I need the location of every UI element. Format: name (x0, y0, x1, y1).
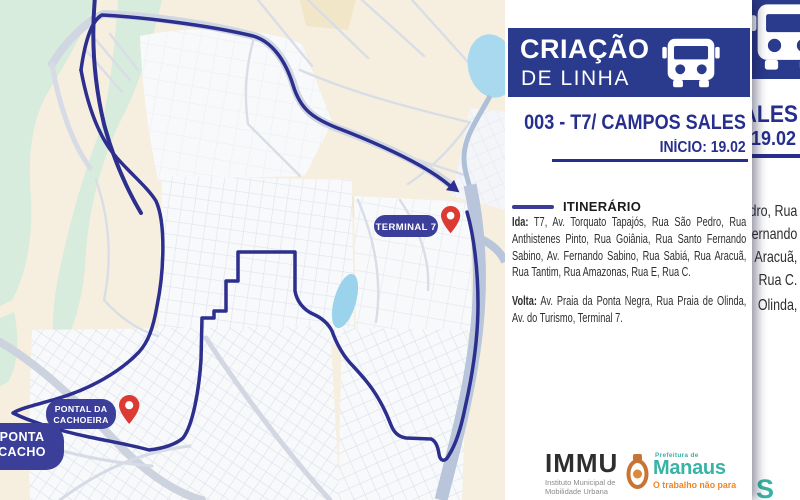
flyer-screenshot: ALES 19.02 dro, Rua ernando Aracuã, Rua … (0, 0, 800, 500)
ida-line: Rua Tantim, Rua Amazonas, Rua E, Rua C. (512, 264, 746, 281)
ida-text: T7, Av. Torquato Tapajós, Rua São Pedro,… (534, 214, 746, 229)
line-title: 003 - T7/ CAMPOS SALES (524, 111, 746, 135)
heading-label: ITINERÁRIO (563, 199, 641, 214)
route-map: TERMINAL 7 PONTAL DA CACHOEIRA (0, 0, 505, 500)
line-start-date: INÍCIO: 19.02 (660, 139, 746, 157)
volta-line: Volta: Av. Praia da Ponta Negra, Rua Pra… (512, 293, 746, 310)
heading-dash (512, 205, 554, 209)
fragment-line: Rua C. (749, 269, 797, 292)
title-underline (552, 159, 748, 162)
ida-line: Ida: T7, Av. Torquato Tapajós, Rua São P… (512, 214, 746, 231)
info-panel: CRIAÇÃO DE LINHA 003 - T7/ CAMPOS SALES … (505, 0, 752, 500)
immu-subtitle-line1: Instituto Municipal de (545, 478, 618, 487)
manaus-tagline: O trabalho não para (653, 480, 736, 490)
background-manaus-logo-fragment: S (756, 474, 774, 500)
bus-icon (750, 2, 800, 72)
manaus-name: Manaus (653, 459, 736, 478)
fragment-line: Olinda, (749, 294, 797, 317)
bus-icon (662, 37, 720, 89)
pontal-label-line1: PONTAL DA (55, 404, 108, 414)
background-duplicate-panel: ALES 19.02 dro, Rua ernando Aracuã, Rua … (750, 0, 800, 500)
background-banner-fragment (750, 0, 800, 79)
pontal-label-line2: CACHOEIRA (53, 415, 109, 425)
manaus-logo: Prefeitura de Manaus O trabalho não para (625, 452, 736, 490)
itinerary-volta: Volta: Av. Praia da Ponta Negra, Rua Pra… (512, 293, 746, 327)
partial-pill-line2: CACHO (0, 445, 64, 460)
immu-logo: IMMU Instituto Municipal de Mobilidade U… (545, 451, 618, 496)
fragment-line: ernando (749, 223, 797, 246)
ida-label: Ida: (512, 214, 528, 229)
background-itinerary-fragments: dro, Rua ernando Aracuã, Rua C. Olinda, (749, 200, 797, 317)
banner-subtitle: DE LINHA (521, 67, 630, 91)
ida-line: Sabino, Av. Fernando Sabino, Rua Sabiá, … (512, 248, 746, 265)
background-underline (750, 154, 800, 158)
immu-logo-name: IMMU (545, 451, 618, 475)
immu-logo-subtitle: Instituto Municipal de Mobilidade Urbana (545, 478, 618, 496)
fragment-line: Aracuã, (749, 246, 797, 269)
manaus-crest-icon (625, 454, 650, 490)
itinerary-heading: ITINERÁRIO (512, 199, 641, 214)
terminal-7-pill: TERMINAL 7 (374, 215, 438, 237)
flyer: TERMINAL 7 PONTAL DA CACHOEIRA CRIAÇÃO D… (0, 0, 752, 500)
ida-line: Anthistenes Pinto, Rua Goiânia, Rua Sant… (512, 231, 746, 248)
fragment-line: dro, Rua (749, 200, 797, 223)
banner-title: CRIAÇÃO (520, 34, 650, 65)
background-pontal-pill-fragment: PONTA CACHO (0, 423, 64, 470)
volta-label: Volta: (512, 293, 537, 308)
partial-pill-line1: PONTA (0, 430, 64, 445)
immu-subtitle-line2: Mobilidade Urbana (545, 487, 618, 496)
pontal-pill: PONTAL DA CACHOEIRA (46, 399, 116, 429)
itinerary-ida: Ida: T7, Av. Torquato Tapajós, Rua São P… (512, 214, 746, 281)
volta-line: Av. do Turismo, Terminal 7. (512, 310, 746, 327)
creation-banner: CRIAÇÃO DE LINHA (508, 28, 750, 97)
volta-text: Av. Praia da Ponta Negra, Rua Praia de O… (540, 293, 746, 308)
background-start-fragment: 19.02 (751, 128, 796, 151)
terminal-7-label: TERMINAL 7 (376, 222, 437, 233)
